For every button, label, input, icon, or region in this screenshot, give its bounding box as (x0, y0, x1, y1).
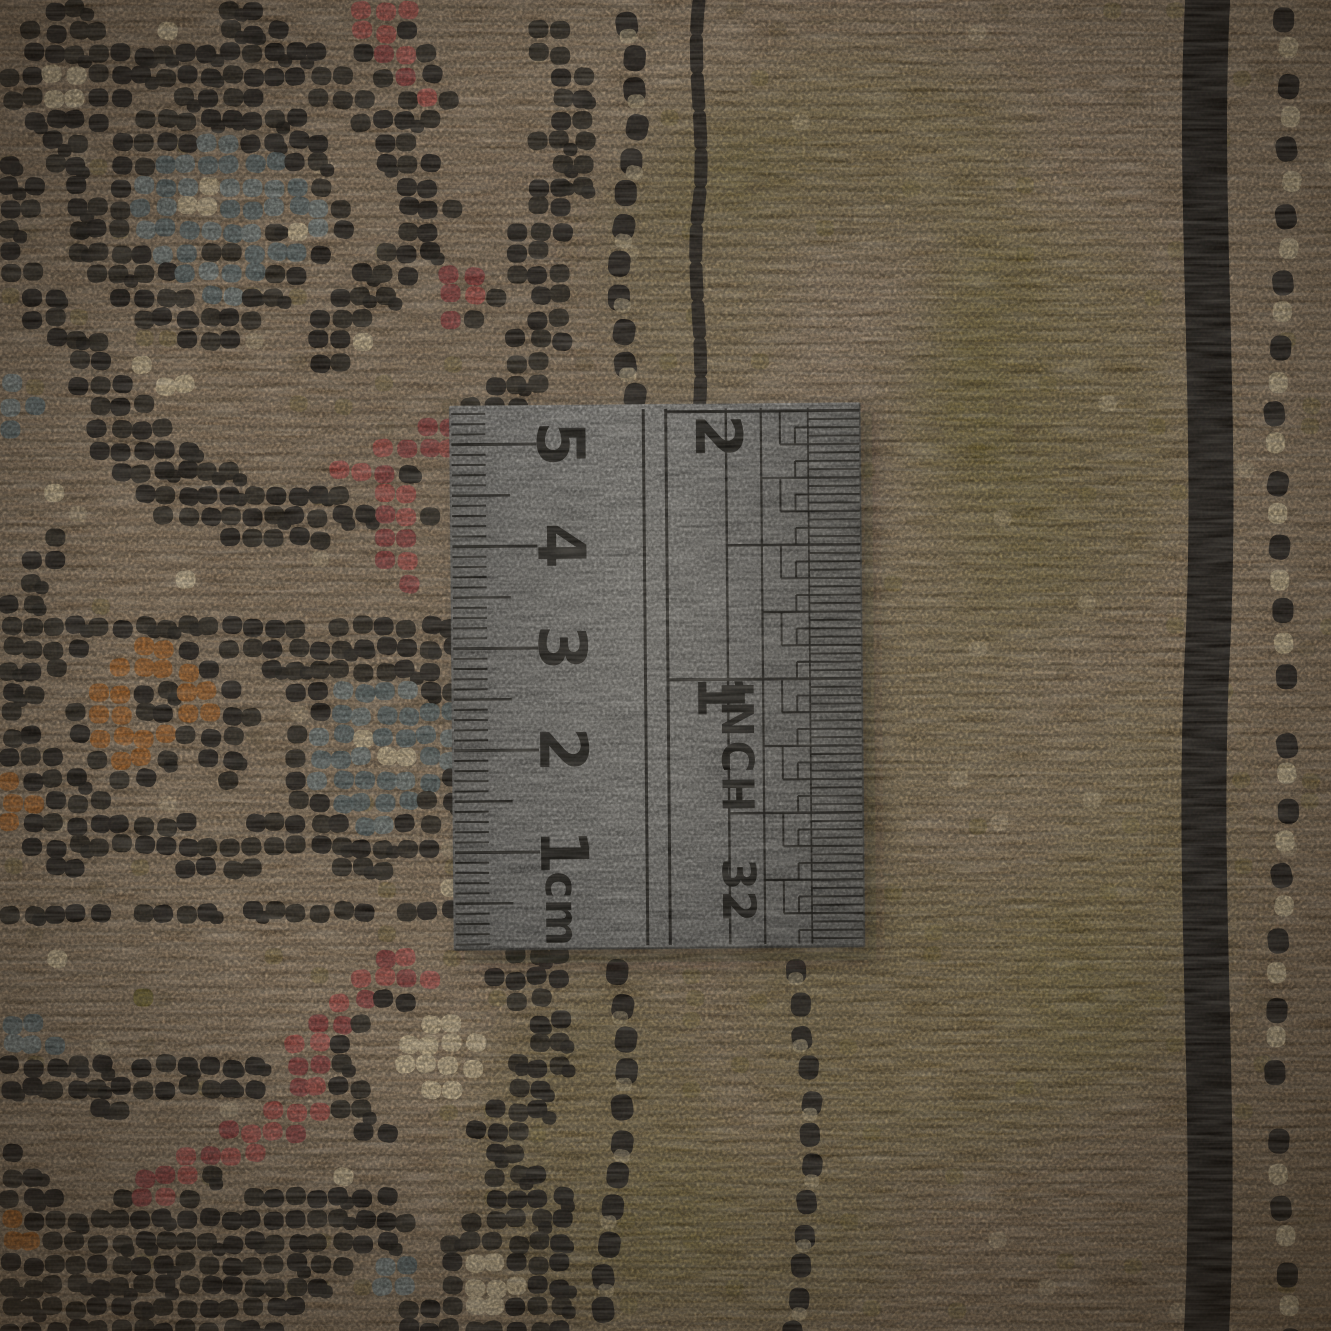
photo-scene: 1 2 3 4 5 cm 2 1 INCH 32 (0, 0, 1331, 1331)
rug-closeup-photo: 1 2 3 4 5 cm 2 1 INCH 32 (0, 0, 1331, 1331)
photo-vignette (0, 0, 1331, 1331)
